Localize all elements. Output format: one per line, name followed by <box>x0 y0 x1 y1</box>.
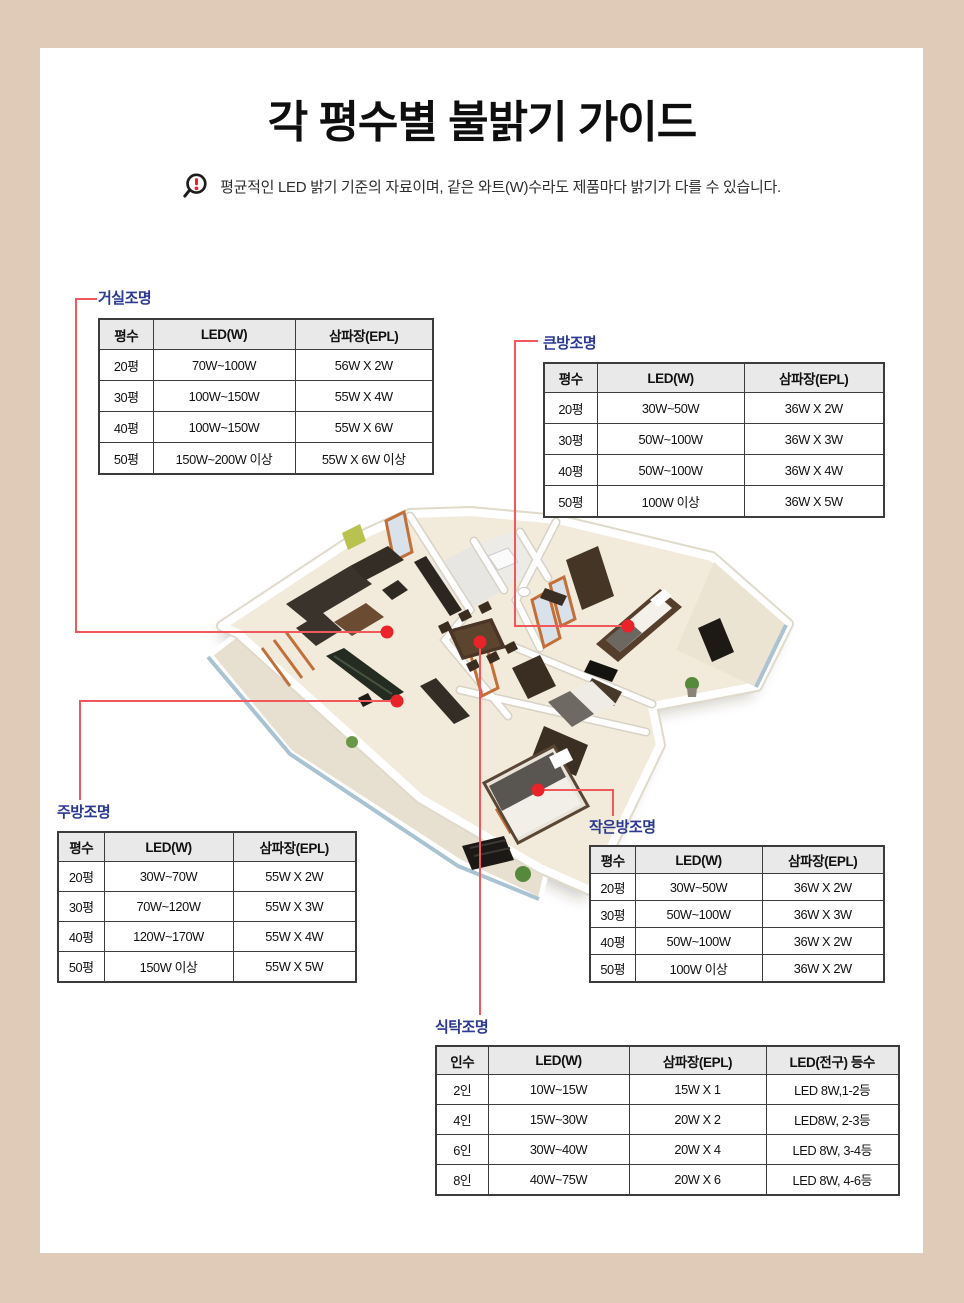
table-cell: 20평 <box>590 874 635 901</box>
table-cell: 55W X 3W <box>233 892 356 922</box>
smallroom-table-label: 작은방조명 <box>589 820 885 836</box>
table-cell: 30평 <box>99 381 153 412</box>
table-row: 30평50W~100W36W X 3W <box>590 901 884 928</box>
table-cell: 55W X 4W <box>233 922 356 952</box>
column-header: LED(전구) 등수 <box>766 1046 899 1075</box>
table-row: 50평100W 이상36W X 5W <box>544 486 884 518</box>
table-cell: 2인 <box>436 1075 488 1105</box>
living-room-table-group: 거실조명 평수LED(W)삼파장(EPL)20평70W~100W56W X 2W… <box>98 291 434 475</box>
table-cell: 150W~200W 이상 <box>153 443 295 475</box>
notice-text: 평균적인 LED 밝기 기준의 자료이며, 같은 와트(W)수라도 제품마다 밝… <box>220 176 781 197</box>
column-header: LED(W) <box>597 363 744 393</box>
column-header: 평수 <box>58 832 104 862</box>
table-row: 20평30W~50W36W X 2W <box>544 393 884 424</box>
column-header: LED(W) <box>488 1046 629 1075</box>
table-cell: 15W X 1 <box>629 1075 766 1105</box>
table-row: 6인30W~40W20W X 4LED 8W, 3-4등 <box>436 1135 899 1165</box>
column-header: 삼파장(EPL) <box>744 363 884 393</box>
table-cell: 55W X 6W 이상 <box>295 443 433 475</box>
kitchen-table-label: 주방조명 <box>57 805 357 821</box>
column-header: 평수 <box>99 319 153 350</box>
table-header-row: 인수LED(W)삼파장(EPL)LED(전구) 등수 <box>436 1046 899 1075</box>
table-row: 20평70W~100W56W X 2W <box>99 350 433 381</box>
table-cell: 100W 이상 <box>635 955 762 983</box>
table-cell: 40평 <box>590 928 635 955</box>
page-title: 각 평수별 불밝기 가이드 <box>0 86 964 150</box>
table-cell: 36W X 5W <box>744 486 884 518</box>
table-cell: 55W X 2W <box>233 862 356 892</box>
table-cell: 55W X 4W <box>295 381 433 412</box>
table-cell: 70W~120W <box>104 892 233 922</box>
table-cell: 36W X 2W <box>762 928 884 955</box>
table-row: 20평30W~70W55W X 2W <box>58 862 356 892</box>
table-cell: 36W X 3W <box>762 901 884 928</box>
table-cell: 20W X 2 <box>629 1105 766 1135</box>
magnifier-alert-icon <box>183 172 211 200</box>
table-cell: 120W~170W <box>104 922 233 952</box>
column-header: 평수 <box>590 846 635 874</box>
table-cell: 100W~150W <box>153 412 295 443</box>
table-cell: 55W X 6W <box>295 412 433 443</box>
table-row: 8인40W~75W20W X 6LED 8W, 4-6등 <box>436 1165 899 1196</box>
dining-table: 인수LED(W)삼파장(EPL)LED(전구) 등수2인10W~15W15W X… <box>435 1045 900 1196</box>
table-cell: 10W~15W <box>488 1075 629 1105</box>
table-cell: LED 8W, 3-4등 <box>766 1135 899 1165</box>
table-cell: 36W X 3W <box>744 424 884 455</box>
column-header: 인수 <box>436 1046 488 1075</box>
table-cell: 100W~150W <box>153 381 295 412</box>
table-cell: 55W X 5W <box>233 952 356 983</box>
table-row: 2인10W~15W15W X 1LED 8W,1-2등 <box>436 1075 899 1105</box>
table-row: 40평50W~100W36W X 2W <box>590 928 884 955</box>
column-header: 삼파장(EPL) <box>762 846 884 874</box>
table-cell: 40W~75W <box>488 1165 629 1196</box>
table-cell: 36W X 2W <box>744 393 884 424</box>
table-row: 4인15W~30W20W X 2LED8W, 2-3등 <box>436 1105 899 1135</box>
table-cell: 50평 <box>58 952 104 983</box>
column-header: 삼파장(EPL) <box>295 319 433 350</box>
bigroom-table-label: 큰방조명 <box>543 336 885 352</box>
table-row: 30평100W~150W55W X 4W <box>99 381 433 412</box>
table-cell: 30W~50W <box>597 393 744 424</box>
table-cell: 50W~100W <box>635 928 762 955</box>
table-cell: 36W X 2W <box>762 955 884 983</box>
table-row: 50평150W~200W 이상55W X 6W 이상 <box>99 443 433 475</box>
table-cell: 50W~100W <box>635 901 762 928</box>
table-cell: 36W X 4W <box>744 455 884 486</box>
column-header: 평수 <box>544 363 597 393</box>
column-header: LED(W) <box>153 319 295 350</box>
table-row: 40평100W~150W55W X 6W <box>99 412 433 443</box>
table-cell: 30W~50W <box>635 874 762 901</box>
table-row: 20평30W~50W36W X 2W <box>590 874 884 901</box>
column-header: 삼파장(EPL) <box>629 1046 766 1075</box>
table-cell: LED8W, 2-3등 <box>766 1105 899 1135</box>
table-cell: 40평 <box>99 412 153 443</box>
dining-table-table-group: 식탁조명 인수LED(W)삼파장(EPL)LED(전구) 등수2인10W~15W… <box>435 1020 900 1196</box>
table-row: 40평120W~170W55W X 4W <box>58 922 356 952</box>
table-cell: 4인 <box>436 1105 488 1135</box>
bigroom-table: 평수LED(W)삼파장(EPL)20평30W~50W36W X 2W30평50W… <box>543 362 885 518</box>
table-header-row: 평수LED(W)삼파장(EPL) <box>544 363 884 393</box>
kitchen-table: 평수LED(W)삼파장(EPL)20평30W~70W55W X 2W30평70W… <box>57 831 357 983</box>
table-cell: 15W~30W <box>488 1105 629 1135</box>
table-cell: 30평 <box>590 901 635 928</box>
table-cell: 50W~100W <box>597 455 744 486</box>
dining-table-label: 식탁조명 <box>435 1020 900 1036</box>
table-cell: 40평 <box>544 455 597 486</box>
table-cell: 6인 <box>436 1135 488 1165</box>
table-cell: 30평 <box>544 424 597 455</box>
table-header-row: 평수LED(W)삼파장(EPL) <box>590 846 884 874</box>
table-cell: 30W~70W <box>104 862 233 892</box>
table-row: 30평50W~100W36W X 3W <box>544 424 884 455</box>
column-header: 삼파장(EPL) <box>233 832 356 862</box>
table-cell: 20W X 6 <box>629 1165 766 1196</box>
table-header-row: 평수LED(W)삼파장(EPL) <box>99 319 433 350</box>
table-row: 50평150W 이상55W X 5W <box>58 952 356 983</box>
living-table-label: 거실조명 <box>98 291 434 307</box>
table-cell: 20평 <box>58 862 104 892</box>
table-cell: 50평 <box>544 486 597 518</box>
table-cell: 50평 <box>590 955 635 983</box>
table-cell: 30W~40W <box>488 1135 629 1165</box>
page-background: { "page": { "title": "각 평수별 불밝기 가이드", "n… <box>0 0 964 1303</box>
table-cell: 56W X 2W <box>295 350 433 381</box>
column-header: LED(W) <box>635 846 762 874</box>
big-room-table-group: 큰방조명 평수LED(W)삼파장(EPL)20평30W~50W36W X 2W3… <box>543 336 885 518</box>
column-header: LED(W) <box>104 832 233 862</box>
table-cell: 50W~100W <box>597 424 744 455</box>
table-cell: 20평 <box>99 350 153 381</box>
table-cell: 8인 <box>436 1165 488 1196</box>
living-table: 평수LED(W)삼파장(EPL)20평70W~100W56W X 2W30평10… <box>98 318 434 475</box>
table-cell: 100W 이상 <box>597 486 744 518</box>
table-header-row: 평수LED(W)삼파장(EPL) <box>58 832 356 862</box>
table-cell: 20평 <box>544 393 597 424</box>
table-cell: 30평 <box>58 892 104 922</box>
table-cell: 50평 <box>99 443 153 475</box>
table-row: 50평100W 이상36W X 2W <box>590 955 884 983</box>
table-cell: LED 8W, 4-6등 <box>766 1165 899 1196</box>
kitchen-table-group: 주방조명 평수LED(W)삼파장(EPL)20평30W~70W55W X 2W3… <box>57 805 357 983</box>
small-room-table-group: 작은방조명 평수LED(W)삼파장(EPL)20평30W~50W36W X 2W… <box>589 820 885 983</box>
table-row: 40평50W~100W36W X 4W <box>544 455 884 486</box>
table-row: 30평70W~120W55W X 3W <box>58 892 356 922</box>
table-cell: 20W X 4 <box>629 1135 766 1165</box>
table-cell: LED 8W,1-2등 <box>766 1075 899 1105</box>
table-cell: 150W 이상 <box>104 952 233 983</box>
notice: 평균적인 LED 밝기 기준의 자료이며, 같은 와트(W)수라도 제품마다 밝… <box>0 172 964 200</box>
smallroom-table: 평수LED(W)삼파장(EPL)20평30W~50W36W X 2W30평50W… <box>589 845 885 983</box>
table-cell: 40평 <box>58 922 104 952</box>
table-cell: 36W X 2W <box>762 874 884 901</box>
table-cell: 70W~100W <box>153 350 295 381</box>
